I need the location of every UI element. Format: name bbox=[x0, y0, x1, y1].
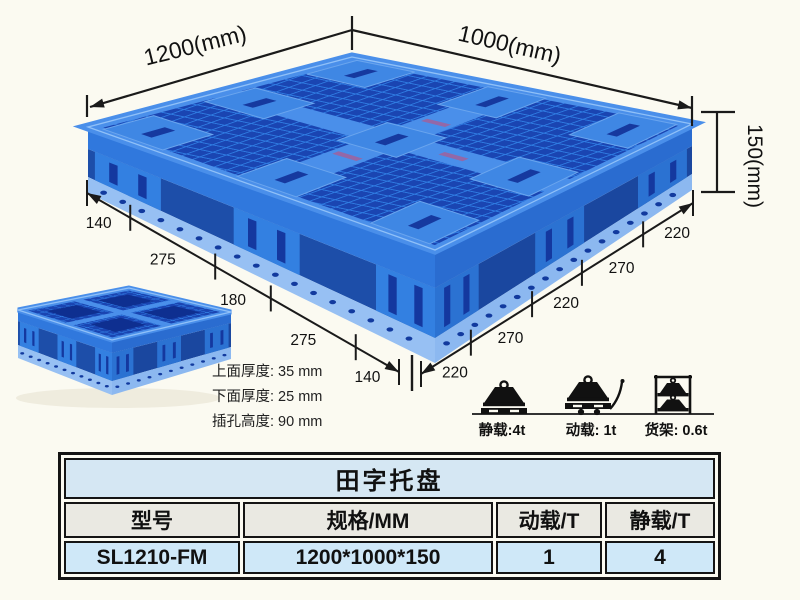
static-load-header: 静载/T bbox=[605, 502, 715, 538]
skid-hole bbox=[234, 254, 241, 258]
weight-base bbox=[483, 403, 525, 407]
skid-hole bbox=[222, 354, 226, 356]
spec-header: 规格/MM bbox=[243, 502, 493, 538]
dim-label-1200: 1200(mm) bbox=[141, 20, 249, 71]
skid-hole bbox=[63, 369, 67, 371]
foot-slot bbox=[567, 217, 573, 249]
dim-arrow bbox=[677, 100, 693, 112]
foot-slot bbox=[248, 218, 256, 250]
skid-hole bbox=[329, 300, 336, 304]
skid-hole bbox=[201, 360, 205, 362]
skid-hole bbox=[556, 267, 563, 271]
skid-hole bbox=[500, 304, 507, 308]
skid-hole bbox=[528, 286, 535, 290]
skid-hole bbox=[115, 385, 119, 387]
skid-hole bbox=[367, 318, 374, 322]
skid-hole bbox=[79, 375, 83, 377]
small-pallet-image bbox=[18, 288, 231, 395]
skid-hole bbox=[54, 365, 58, 367]
foot-slot bbox=[163, 345, 166, 362]
spec-value: 1200*1000*150 bbox=[243, 541, 493, 574]
dim-segment-label: 220 bbox=[442, 365, 468, 382]
spec-table-grid: 田字托盘 型号 规格/MM 动载/T 静载/T SL1210-FM 1200*1… bbox=[58, 452, 721, 580]
weight-handle bbox=[671, 395, 675, 399]
dim-label-1000: 1000(mm) bbox=[456, 20, 564, 69]
static-load-icon bbox=[481, 381, 527, 414]
skid-hole bbox=[212, 357, 216, 359]
dim-segment-label: 140 bbox=[86, 215, 112, 232]
foot-slot bbox=[126, 354, 129, 372]
skid-hole bbox=[627, 221, 634, 225]
note-bottom-thickness: 下面厚度: 25 mm bbox=[212, 388, 322, 405]
skid-hole bbox=[599, 239, 606, 243]
dim-segment-label: 275 bbox=[150, 252, 176, 269]
skid-hole bbox=[190, 363, 194, 365]
skid-hole bbox=[119, 200, 126, 204]
note-slot-height: 插孔高度: 90 mm bbox=[212, 413, 322, 430]
skid-hole bbox=[100, 191, 107, 195]
pallet-bar bbox=[565, 403, 611, 409]
foot-slot bbox=[221, 330, 224, 345]
skid-hole bbox=[514, 295, 521, 299]
foot-slot bbox=[210, 333, 213, 348]
skid-hole bbox=[169, 370, 173, 372]
table-title: 田字托盘 bbox=[64, 458, 715, 499]
dim-segment-label: 270 bbox=[609, 260, 635, 277]
foot-slot bbox=[109, 163, 117, 186]
pallet-slot bbox=[573, 405, 582, 407]
foot-slot bbox=[463, 274, 469, 315]
weight-body bbox=[660, 383, 686, 393]
foot-slot bbox=[444, 285, 450, 328]
skid-hole bbox=[386, 327, 393, 331]
skid-hole bbox=[158, 373, 162, 375]
skid-hole bbox=[71, 372, 75, 374]
skid-hole bbox=[20, 352, 24, 354]
skid-hole bbox=[126, 382, 130, 384]
trolley-wheel bbox=[578, 409, 584, 415]
skid-hole bbox=[291, 282, 298, 286]
foot-slot bbox=[106, 356, 108, 375]
skid-hole bbox=[180, 367, 184, 369]
skid-hole bbox=[157, 218, 164, 222]
foot-slot bbox=[649, 172, 655, 197]
skid-hole bbox=[272, 273, 279, 277]
table-row: SL1210-FM 1200*1000*150 1 4 bbox=[64, 541, 715, 574]
skid-hole bbox=[177, 227, 184, 231]
foot-slot bbox=[117, 356, 120, 375]
rack-load-icon bbox=[654, 375, 692, 414]
dynamic-load-icon bbox=[565, 376, 625, 415]
skid-hole bbox=[542, 276, 549, 280]
pallet-slot bbox=[510, 410, 519, 412]
foot-slot bbox=[62, 341, 64, 358]
thickness-notes: 上面厚度: 35 mm 下面厚度: 25 mm 插孔高度: 90 mm bbox=[212, 363, 322, 430]
skid-hole bbox=[37, 359, 41, 361]
skid-hole bbox=[88, 378, 92, 380]
pallet-slot bbox=[594, 405, 603, 407]
skid-hole bbox=[96, 382, 100, 384]
dynamic-load-header: 动载/T bbox=[496, 502, 602, 538]
skid-hole bbox=[138, 209, 145, 213]
load-rating-icons: 静载:4t 动载: 1t 货架: 0.6t bbox=[472, 375, 714, 439]
skid-hole bbox=[613, 230, 620, 234]
trolley-wheel bbox=[594, 409, 600, 415]
weight-body bbox=[484, 387, 524, 403]
foot-slot bbox=[173, 342, 176, 359]
skid-hole bbox=[443, 341, 450, 345]
skid-hole bbox=[310, 291, 317, 295]
dim-segment-label: 220 bbox=[553, 295, 579, 312]
skid-hole bbox=[585, 249, 592, 253]
foot-slot bbox=[32, 331, 34, 346]
trolley-grip bbox=[621, 379, 625, 383]
dim-arrow bbox=[89, 99, 105, 112]
skid-hole bbox=[348, 309, 355, 313]
skid-hole bbox=[253, 264, 260, 268]
static-load-value: 4 bbox=[605, 541, 715, 574]
note-top-thickness: 上面厚度: 35 mm bbox=[212, 363, 322, 380]
weight-body bbox=[660, 400, 686, 409]
foot-slot bbox=[670, 160, 676, 183]
foot-slot bbox=[70, 344, 72, 361]
foot-slot bbox=[138, 174, 146, 199]
foot-slot bbox=[388, 274, 396, 315]
skid-hole bbox=[457, 332, 464, 336]
static-load-label: 静载:4t bbox=[479, 421, 526, 439]
foot-slot bbox=[414, 285, 422, 328]
spec-table: 田字托盘 型号 规格/MM 动载/T 静载/T SL1210-FM 1200*1… bbox=[58, 452, 720, 580]
skid-hole bbox=[147, 376, 151, 378]
skid-hole bbox=[46, 362, 50, 364]
dim-segment-label: 275 bbox=[290, 332, 316, 349]
skid-hole bbox=[570, 258, 577, 262]
skid-hole bbox=[215, 245, 222, 249]
dim-label-150: 150(mm) bbox=[743, 124, 766, 208]
pallet-spec-sheet: 140275180275140220270220270220 1200(mm) … bbox=[0, 0, 800, 600]
dynamic-load-label: 动载: 1t bbox=[566, 421, 617, 439]
dynamic-load-value: 1 bbox=[496, 541, 602, 574]
skid-hole bbox=[406, 336, 413, 340]
weight-handle bbox=[671, 378, 675, 382]
weight-base bbox=[567, 398, 609, 402]
weight-body bbox=[568, 382, 608, 398]
dim-segment-label: 220 bbox=[664, 225, 690, 242]
foot-slot bbox=[546, 228, 552, 262]
skid-hole bbox=[196, 236, 203, 240]
skid-hole bbox=[669, 193, 676, 197]
foot-slot bbox=[24, 328, 26, 343]
skid-hole bbox=[655, 202, 662, 206]
skid-hole bbox=[471, 323, 478, 327]
pallet-bar bbox=[481, 408, 527, 414]
dim-segment-label: 140 bbox=[354, 369, 380, 386]
foot-slot bbox=[277, 230, 285, 264]
pallet-slot bbox=[489, 410, 498, 412]
model-value: SL1210-FM bbox=[64, 541, 240, 574]
skid-hole bbox=[29, 355, 33, 357]
skid-hole bbox=[641, 211, 648, 215]
rack-shelf bbox=[658, 408, 689, 411]
trolley-handle bbox=[610, 382, 622, 409]
skid-hole bbox=[105, 385, 109, 387]
dim-segment-label: 270 bbox=[498, 330, 524, 347]
model-header: 型号 bbox=[64, 502, 240, 538]
rack-load-label: 货架: 0.6t bbox=[645, 421, 708, 439]
foot-slot bbox=[99, 354, 101, 372]
skid-hole bbox=[137, 379, 141, 381]
skid-hole bbox=[486, 313, 493, 317]
dim-segment-label: 180 bbox=[220, 292, 246, 309]
